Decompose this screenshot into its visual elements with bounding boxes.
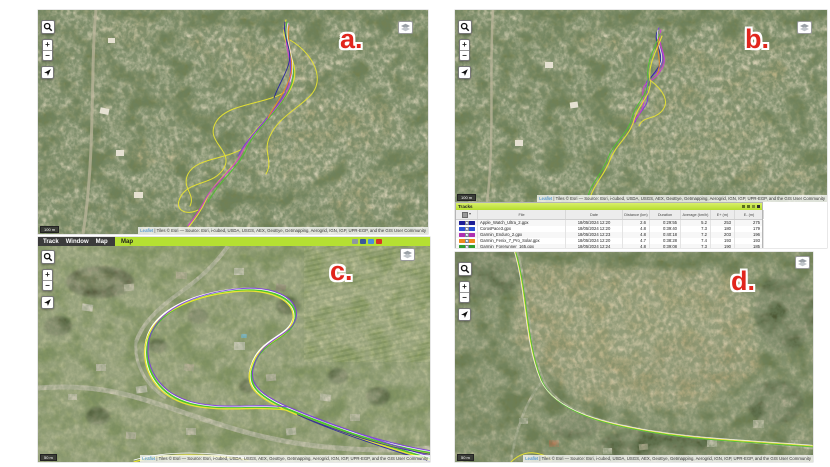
satellite-map-d [455,252,813,462]
locate-arrow-icon [43,68,52,77]
map-attribution: Leaflet | Tiles © Esri — Source: Esri, i… [138,227,428,234]
header-eplus[interactable]: E+ (m) [711,210,735,219]
zoom-in-button[interactable]: + [43,40,52,51]
leaflet-link[interactable]: Leaflet [539,196,552,201]
layers-button[interactable] [795,256,810,269]
cell-average: 7.3 [681,244,711,248]
map-panel-b[interactable]: + − b. 100 m Leaflet | Tiles © Esri — So… [455,10,827,248]
tab-map[interactable]: Map [121,239,133,245]
header-eminus[interactable]: E- (m) [735,210,764,219]
map-attribution: Leaflet | Tiles © Esri — Source: Esri, i… [537,195,827,202]
header-duration[interactable]: Duration [650,210,681,219]
track-color-swatch [459,233,475,238]
header-file[interactable]: File [478,210,566,219]
layers-icon [797,258,808,267]
layers-button[interactable] [398,21,413,34]
locate-button[interactable] [41,66,54,79]
zoom-out-button[interactable]: − [460,51,469,61]
tracks-table: Tracks ▾ File Date Distance (km) Duratio… [455,202,763,248]
menubar-icons [352,239,382,244]
cell-file: Garmin_Forerunner_165.gpx [478,244,566,248]
zoom-control: + − [459,281,470,303]
locate-button[interactable] [458,66,471,79]
leaflet-link[interactable]: Leaflet [140,228,153,233]
tracks-table-title: Tracks [458,204,473,209]
search-icon [460,264,470,274]
layers-icon [402,250,413,259]
cell-date: 18/05/2024 12:24 [566,244,623,248]
map-panel-c[interactable]: Track Window Map Map [38,237,430,462]
layers-button[interactable] [400,248,415,261]
locate-button[interactable] [458,308,471,321]
zoom-in-button[interactable]: + [460,40,469,51]
zoom-in-button[interactable]: + [43,270,52,281]
row-checkbox[interactable] [465,233,469,237]
layers-button[interactable] [797,21,812,34]
attribution-text: | Tiles © Esri — Source: Esri, i-cubed, … [156,456,428,461]
search-button[interactable] [458,20,472,34]
attribution-text: | Tiles © Esri — Source: Esri, i-cubed, … [553,196,825,201]
cell-distance: 4.8 [623,244,650,248]
menu-item-map[interactable]: Map [96,239,108,245]
layers-icon [400,23,411,32]
locate-arrow-icon [43,298,52,307]
zoom-control: + − [42,269,53,291]
menu-item-track[interactable]: Track [43,239,59,245]
chevron-down-icon: ▾ [469,212,471,216]
zoom-control: + − [459,39,470,61]
track-color-swatch [459,227,475,232]
panel-label-d: d. [731,268,755,295]
panel-label-b: b. [745,26,769,53]
map-canvas-c[interactable]: + − c. 50 m Leaflet | Tiles © Esri — Sou… [38,246,430,462]
row-checkbox[interactable] [465,245,469,248]
header-select[interactable]: ▾ [456,210,478,219]
cell-duration: 0:39:08 [650,244,681,248]
cell-eplus: 190 [711,244,735,248]
search-icon [43,22,53,32]
zoom-out-button[interactable]: − [43,281,52,291]
search-button[interactable] [41,250,55,264]
select-all-icon [462,212,468,218]
track-color-swatch [459,245,475,248]
panel-label-c: c. [330,258,353,285]
tracks-toolbar [742,205,761,209]
menubar-icon-facebook[interactable] [360,239,366,244]
zoom-control: + − [42,39,53,61]
layers-icon [799,23,810,32]
header-distance[interactable]: Distance (km) [623,210,650,219]
search-icon [460,22,470,32]
track-color-swatch [459,221,475,226]
map-attribution: Leaflet | Tiles © Esri — Source: Esri, i… [140,455,430,462]
map-canvas-d[interactable]: + − d. 50 m Leaflet | Tiles © Esri — Sou… [455,252,813,462]
menu-dark-section: Track Window Map [38,237,115,246]
locate-arrow-icon [460,310,469,319]
zoom-in-button[interactable]: + [460,282,469,293]
locate-button[interactable] [41,296,54,309]
map-canvas-b[interactable]: + − b. 100 m Leaflet | Tiles © Esri — So… [455,10,827,202]
header-date[interactable]: Date [566,210,623,219]
row-checkbox[interactable] [465,227,469,231]
map-canvas-a[interactable]: + − a. 100 m Leaflet | Tiles © Esri — So… [38,10,428,234]
search-button[interactable] [41,20,55,34]
search-button[interactable] [458,262,472,276]
tracks-toolbar-icon-4[interactable] [757,205,761,209]
menubar-icon-folder[interactable] [352,239,358,244]
scale-bar: 100 m [40,226,59,233]
tracks-toolbar-icon-3[interactable] [752,205,756,209]
satellite-map-a [38,10,428,234]
leaflet-link[interactable]: Leaflet [525,456,538,461]
menubar-icon-share[interactable] [368,239,374,244]
tracks-table-titlebar: Tracks [456,203,762,210]
track-color-swatch [459,239,475,244]
row-checkbox[interactable] [465,239,469,243]
table-row[interactable]: Garmin_Forerunner_165.gpx 18/05/2024 12:… [456,244,762,248]
leaflet-link[interactable]: Leaflet [142,456,155,461]
menu-item-window[interactable]: Window [66,239,89,245]
map-panel-a[interactable]: + − a. 100 m Leaflet | Tiles © Esri — So… [38,10,428,234]
panel-label-a: a. [340,26,363,53]
satellite-map-c [38,246,430,462]
satellite-map-b [455,10,827,202]
scale-bar: 50 m [40,454,57,461]
map-attribution: Leaflet | Tiles © Esri — Source: Esri, i… [523,455,813,462]
menu-bar: Track Window Map Map [38,237,430,246]
cell-eminus: 185 [735,244,764,248]
scale-bar: 50 m [457,454,474,461]
scale-bar: 100 m [457,194,476,201]
tracks-toolbar-icon-2[interactable] [747,205,751,209]
attribution-text: | Tiles © Esri — Source: Esri, i-cubed, … [154,228,426,233]
tracks-toolbar-icon-1[interactable] [742,205,746,209]
row-checkbox[interactable] [465,221,469,225]
search-icon [43,252,53,262]
tracks-table-header: ▾ File Date Distance (km) Duration Avera… [456,210,762,220]
menu-active-tab-bar: Map [115,237,430,246]
zoom-out-button[interactable]: − [460,293,469,303]
header-average[interactable]: Average (km/h) [681,210,711,219]
map-panel-d[interactable]: + − d. 50 m Leaflet | Tiles © Esri — Sou… [455,252,813,462]
attribution-text: | Tiles © Esri — Source: Esri, i-cubed, … [539,456,811,461]
locate-arrow-icon [460,68,469,77]
zoom-out-button[interactable]: − [43,51,52,61]
figure-canvas: { "attribution": { "leaflet": "Leaflet",… [0,0,830,467]
menubar-icon-video[interactable] [376,239,382,244]
